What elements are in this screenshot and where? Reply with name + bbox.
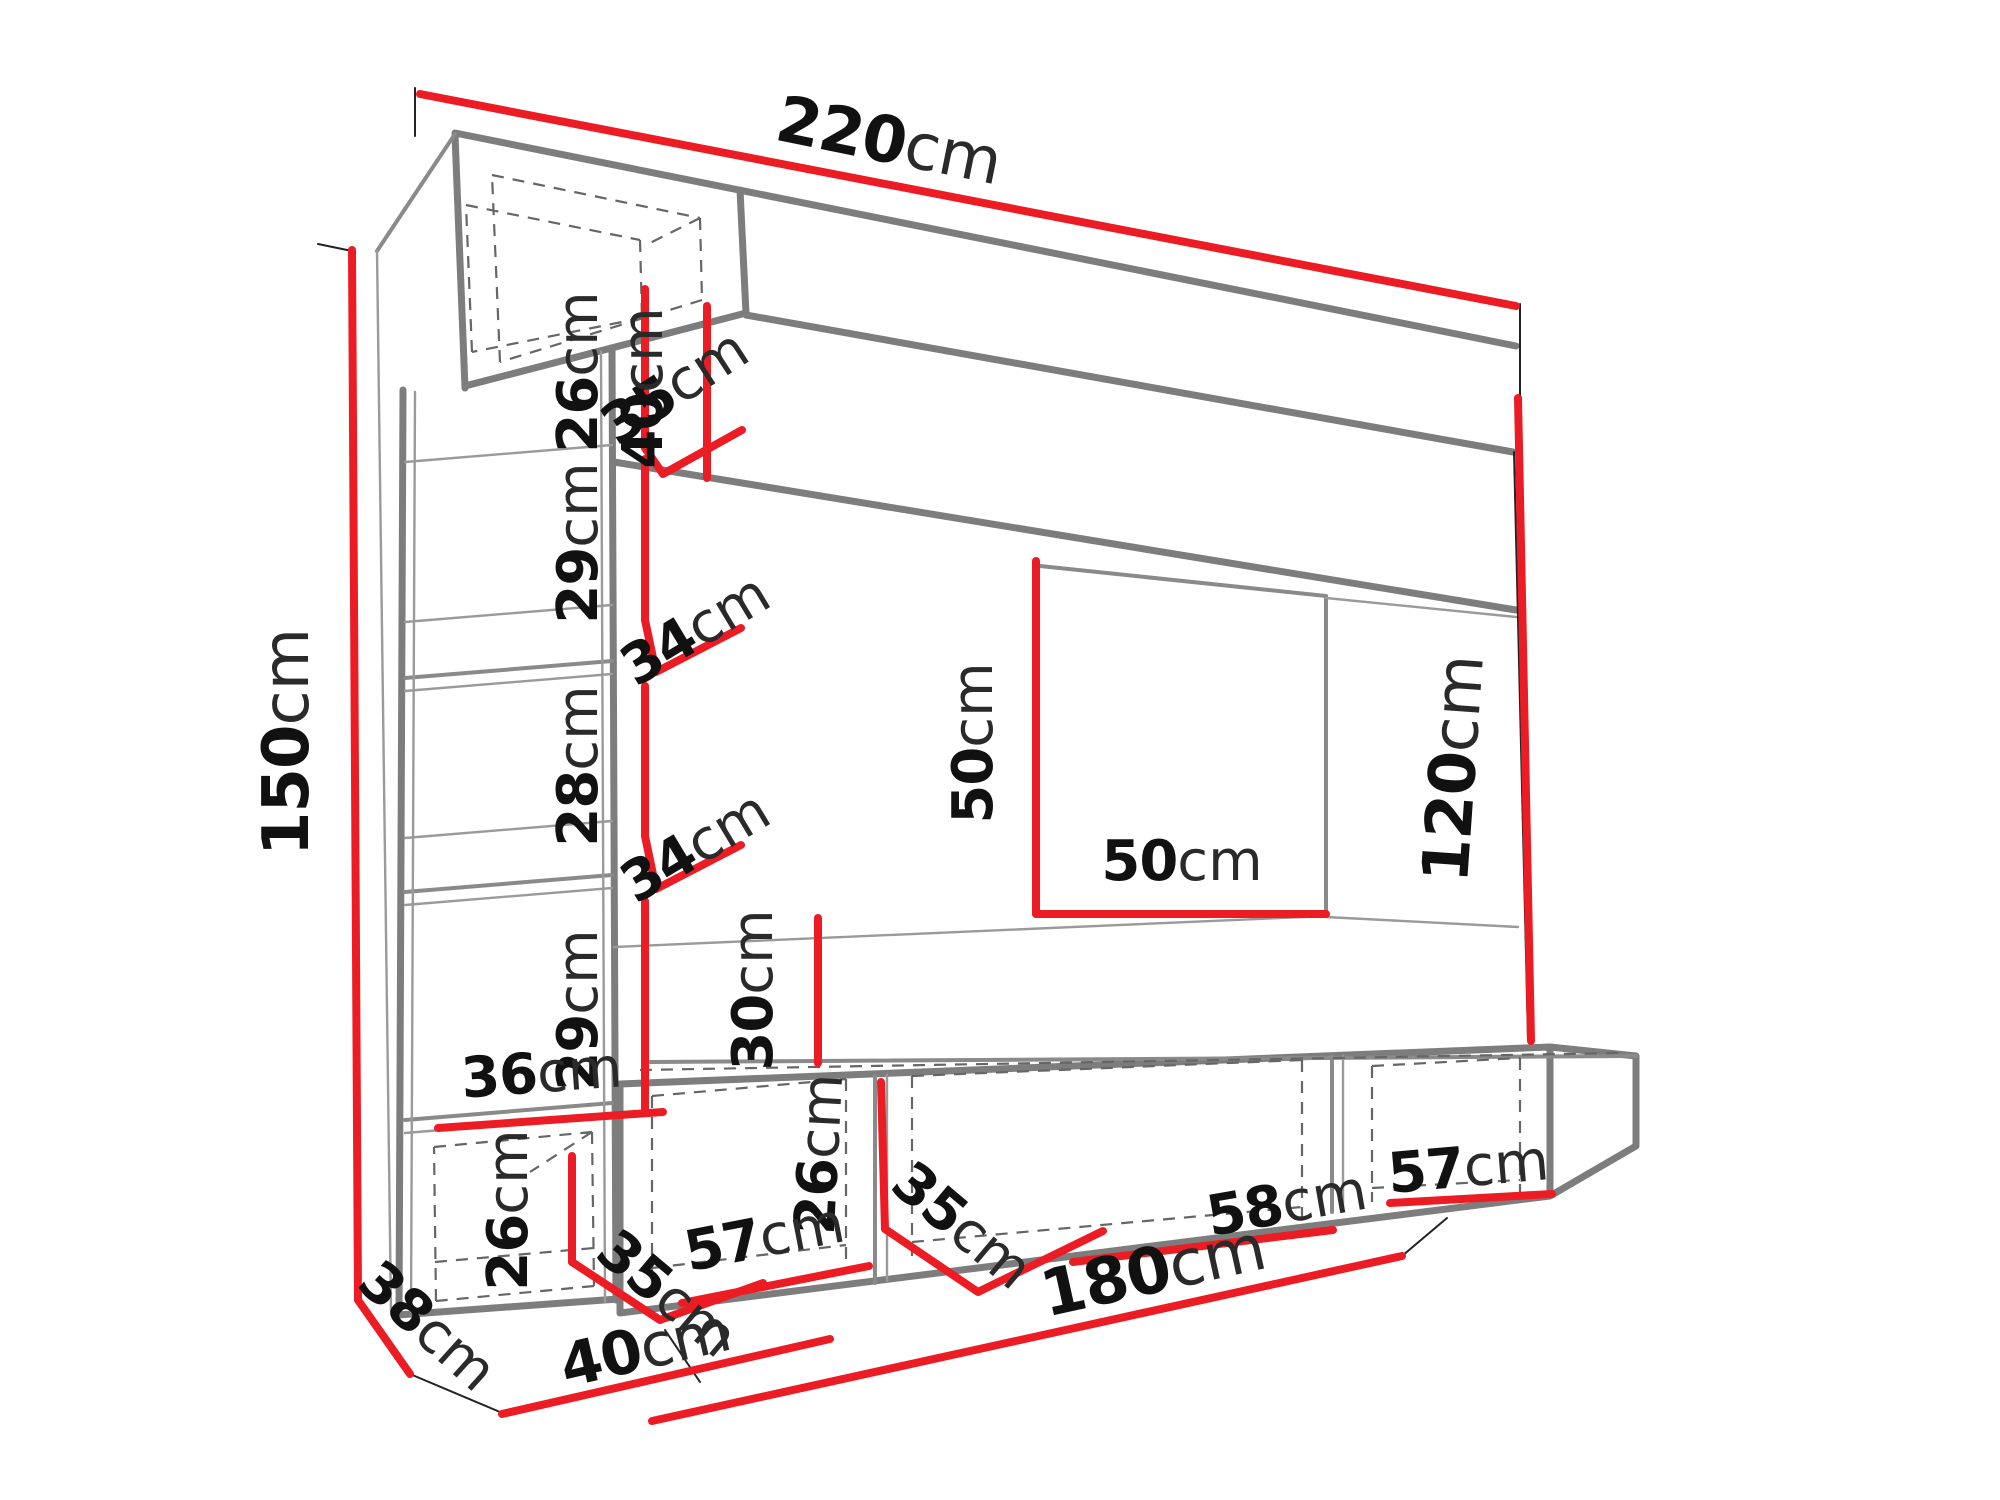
dim-label-shelf-depth-2: 34cm	[610, 778, 782, 917]
dim-label-top-panel-height: 40cm	[611, 307, 676, 468]
dim-label-shelf-gap-2: 28cm	[546, 685, 611, 846]
dim-line-bench-height	[881, 1082, 885, 1229]
dim-label-total-height: 150cm	[250, 628, 324, 856]
dim-line-total-height	[352, 250, 358, 1300]
dim-label-recess-width: 50cm	[1101, 829, 1262, 894]
dim-label-right-height: 120cm	[1409, 652, 1499, 885]
wall-unit-diagram: 220cm 150cm 26cm 35cm 29cm 34cm 28cm 34c…	[0, 0, 2000, 1500]
dim-label-shelf-gap-1: 29cm	[546, 462, 611, 623]
dim-label-comp-mid: 58cm	[1202, 1158, 1372, 1250]
diagram-page: 220cm 150cm 26cm 35cm 29cm 34cm 28cm 34c…	[0, 0, 2000, 1500]
dim-label-base-inner-width: 36cm	[459, 1035, 624, 1111]
dim-label-recess-height: 50cm	[941, 662, 1006, 823]
dim-label-base-cab-height: 26cm	[476, 1129, 541, 1290]
dimension-labels: 220cm 150cm 26cm 35cm 29cm 34cm 28cm 34c…	[250, 82, 1552, 1404]
dim-label-shelf-depth-1: 34cm	[610, 561, 782, 700]
dim-label-top-cab-height: 26cm	[546, 291, 611, 452]
dim-label-panel-gap: 30cm	[721, 909, 786, 1070]
